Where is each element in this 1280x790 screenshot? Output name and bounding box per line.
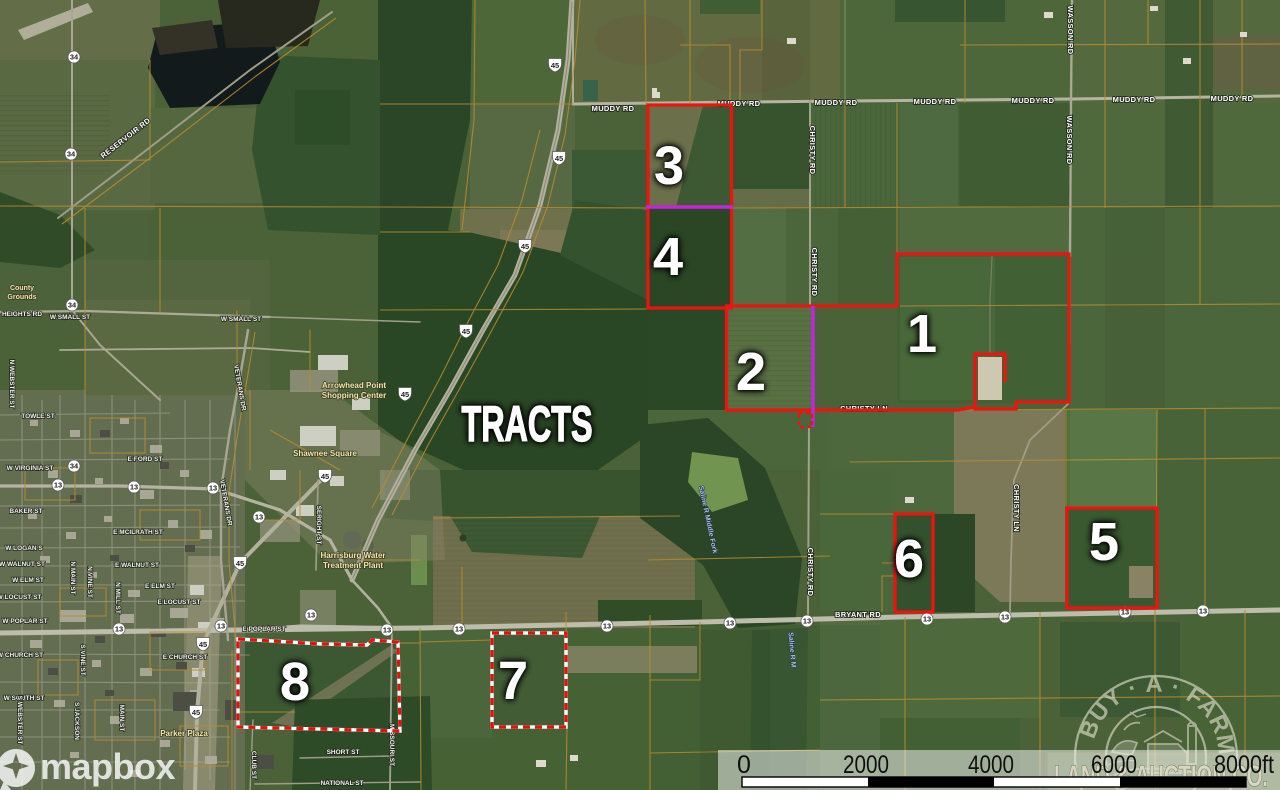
svg-text:3: 3 [654,136,684,196]
svg-text:County: County [10,285,34,292]
svg-text:E ELM ST: E ELM ST [145,583,175,590]
svg-text:13: 13 [130,483,138,492]
svg-text:13: 13 [1199,607,1207,616]
svg-text:34: 34 [68,301,77,310]
svg-text:MUDDY RD: MUDDY RD [815,98,858,107]
svg-text:SHORT ST: SHORT ST [327,749,360,756]
svg-text:45: 45 [555,154,563,163]
svg-text:34: 34 [70,462,79,471]
svg-text:4000: 4000 [968,751,1014,779]
svg-text:5: 5 [1089,512,1119,572]
svg-text:W SMALL ST: W SMALL ST [50,314,90,321]
svg-text:CLUB ST: CLUB ST [250,751,257,779]
svg-text:45: 45 [321,472,329,481]
svg-text:45: 45 [462,327,470,336]
svg-text:13: 13 [455,625,463,634]
svg-text:45: 45 [401,390,409,399]
svg-text:HEIGHTS RD: HEIGHTS RD [2,311,42,318]
svg-text:WASSON RD: WASSON RD [1066,6,1075,55]
svg-text:CHRISTY LN: CHRISTY LN [1012,484,1021,532]
svg-text:W SOUTH ST: W SOUTH ST [4,695,45,702]
svg-text:CHRISTY RD: CHRISTY RD [808,126,817,175]
svg-text:W VIRGINIA ST: W VIRGINIA ST [7,465,54,472]
svg-text:WASSON RD: WASSON RD [1065,116,1074,165]
svg-text:N MAIN ST: N MAIN ST [69,561,76,594]
svg-text:Arrowhead Point: Arrowhead Point [322,381,386,390]
svg-text:13: 13 [217,622,225,631]
svg-text:2000: 2000 [843,751,889,779]
svg-text:E LOCUST ST: E LOCUST ST [158,599,201,606]
svg-text:7: 7 [498,651,528,711]
svg-text:S JACKSON: S JACKSON [73,702,80,740]
svg-text:BRYANT RD: BRYANT RD [835,610,881,619]
svg-text:W LOCUST ST: W LOCUST ST [0,594,41,601]
svg-text:E WALNUT ST: E WALNUT ST [115,562,159,569]
svg-text:MUDDY RD: MUDDY RD [592,104,635,113]
svg-text:45: 45 [551,61,559,70]
svg-text:Parker Plaza: Parker Plaza [160,729,208,738]
svg-text:W POPLAR ST: W POPLAR ST [2,618,47,625]
svg-text:E POPLAR ST: E POPLAR ST [242,626,285,633]
svg-text:W CHURCH ST: W CHURCH ST [0,652,43,659]
svg-text:13: 13 [1001,613,1009,622]
svg-text:BAKER ST: BAKER ST [9,508,42,515]
svg-text:45: 45 [192,708,200,717]
svg-text:N VINE ST: N VINE ST [86,566,93,598]
svg-text:13: 13 [307,611,315,620]
svg-text:MUDDY RD: MUDDY RD [1113,95,1156,104]
svg-text:Grounds: Grounds [7,294,36,301]
svg-text:CHRISTY RD: CHRISTY RD [806,548,815,597]
svg-text:6: 6 [894,529,924,589]
svg-text:SERIGHT ST: SERIGHT ST [315,505,322,544]
svg-text:Treatment Plant: Treatment Plant [323,561,383,570]
svg-text:13: 13 [209,484,217,493]
svg-text:S VINE ST: S VINE ST [79,644,86,675]
svg-text:8000ft: 8000ft [1214,751,1274,779]
svg-text:45: 45 [199,640,207,649]
svg-text:4: 4 [653,227,683,287]
svg-text:W ELM ST: W ELM ST [12,577,44,584]
svg-text:13: 13 [603,622,611,631]
svg-text:MUDDY RD: MUDDY RD [1012,96,1055,105]
svg-text:N MILL ST: N MILL ST [114,582,121,614]
svg-text:MUDDY RD: MUDDY RD [1211,94,1254,103]
svg-text:S WEBSTER ST: S WEBSTER ST [16,696,23,745]
svg-text:Harrisburg Water: Harrisburg Water [320,551,385,560]
svg-text:13: 13 [383,626,391,635]
svg-text:13: 13 [803,617,811,626]
svg-text:34: 34 [70,53,79,62]
svg-text:45: 45 [521,242,529,251]
svg-text:TOWLE ST: TOWLE ST [21,413,54,420]
svg-text:CHRISTY RD: CHRISTY RD [810,248,819,297]
svg-text:E MCILRATH ST: E MCILRATH ST [113,529,163,536]
svg-text:13: 13 [726,619,734,628]
svg-text:NATIONAL ST: NATIONAL ST [320,780,363,787]
svg-text:2: 2 [736,342,766,402]
svg-text:13: 13 [54,481,62,490]
svg-text:34: 34 [67,150,76,159]
svg-text:8: 8 [280,652,310,712]
svg-text:45: 45 [236,559,244,568]
svg-text:1: 1 [907,304,937,364]
svg-text:0: 0 [737,751,751,779]
svg-text:mapbox: mapbox [40,746,176,787]
svg-text:E CHURCH ST: E CHURCH ST [163,654,207,661]
svg-text:13: 13 [115,625,123,634]
svg-text:W SMALL ST: W SMALL ST [221,316,261,323]
svg-text:6000: 6000 [1091,751,1137,779]
svg-text:Shopping Center: Shopping Center [322,391,386,400]
svg-text:MAIN ST: MAIN ST [118,705,125,732]
svg-text:E FORD ST: E FORD ST [128,456,163,463]
svg-text:W WALNUT ST: W WALNUT ST [0,561,45,568]
svg-text:13: 13 [923,615,931,624]
svg-text:Shawnee Square: Shawnee Square [293,449,358,458]
svg-text:N WEBSTER ST: N WEBSTER ST [8,359,15,408]
svg-text:TRACTS: TRACTS [462,396,593,452]
svg-text:13: 13 [255,513,263,522]
svg-text:MUDDY RD: MUDDY RD [914,97,957,106]
svg-text:W LOGAN S: W LOGAN S [5,545,43,552]
